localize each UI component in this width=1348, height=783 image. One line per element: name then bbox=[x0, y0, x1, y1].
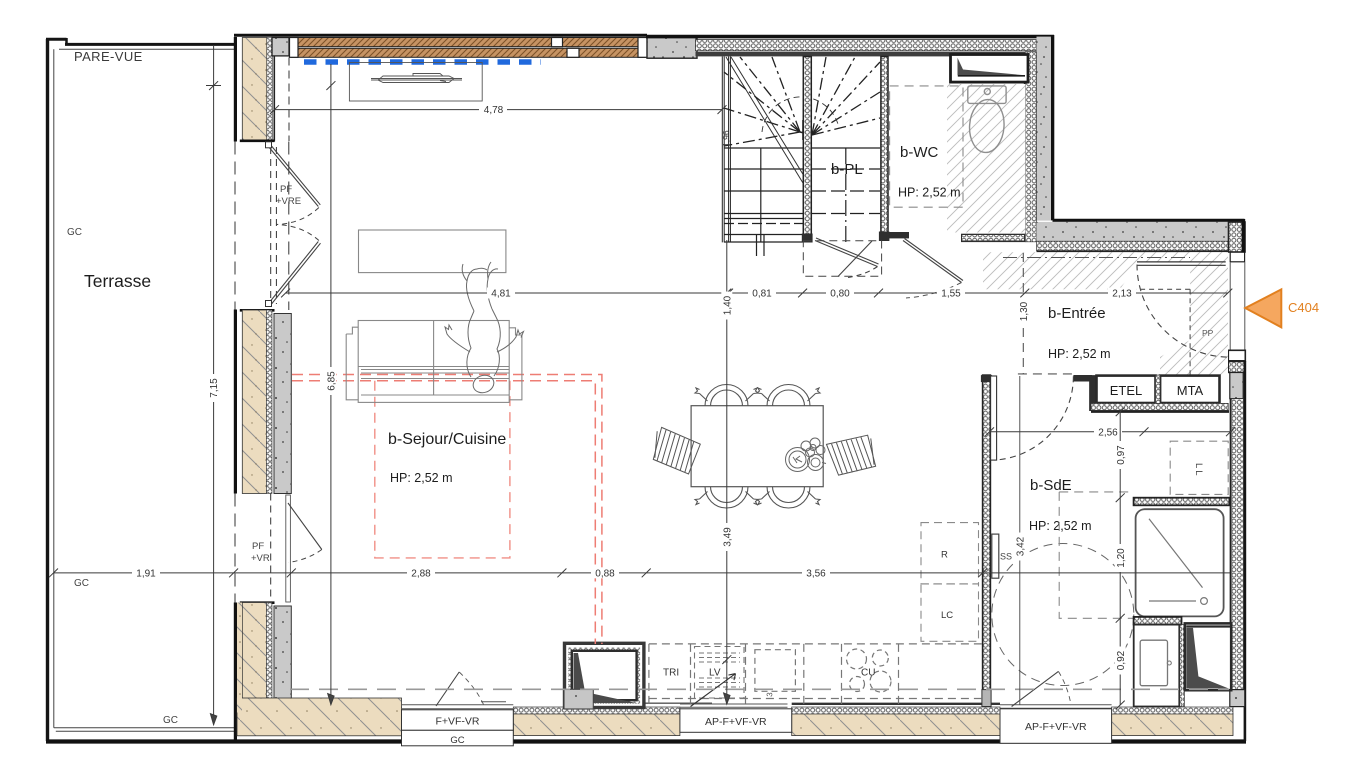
svg-text:GC: GC bbox=[67, 227, 82, 238]
svg-text:ETEL: ETEL bbox=[1110, 383, 1143, 398]
svg-text:b-PL: b-PL bbox=[831, 161, 863, 178]
svg-text:+VRE: +VRE bbox=[276, 196, 301, 207]
svg-text:AP-F+VF-VR: AP-F+VF-VR bbox=[1025, 721, 1087, 733]
svg-text:PP: PP bbox=[1202, 328, 1214, 338]
svg-text:Terrasse: Terrasse bbox=[84, 271, 151, 291]
svg-text:TRI: TRI bbox=[663, 668, 679, 679]
svg-text:HP: 2,52 m: HP: 2,52 m bbox=[1029, 519, 1092, 533]
svg-text:LV: LV bbox=[709, 668, 721, 679]
svg-text:6,85: 6,85 bbox=[327, 371, 338, 391]
svg-text:3,42: 3,42 bbox=[1015, 536, 1026, 556]
svg-text:2,13: 2,13 bbox=[1112, 289, 1132, 300]
svg-text:0,88: 0,88 bbox=[595, 569, 615, 580]
svg-text:0,97: 0,97 bbox=[1116, 445, 1127, 465]
svg-text:b-WC: b-WC bbox=[900, 144, 938, 161]
svg-text:0,92: 0,92 bbox=[1116, 650, 1127, 670]
svg-text:2,56: 2,56 bbox=[1098, 428, 1118, 439]
svg-text:7,15: 7,15 bbox=[209, 378, 220, 398]
svg-text:LC: LC bbox=[941, 610, 953, 621]
svg-text:1,55: 1,55 bbox=[941, 289, 961, 300]
svg-text:AP-F+VF-VR: AP-F+VF-VR bbox=[705, 716, 767, 728]
svg-text:HP: 2,52 m: HP: 2,52 m bbox=[390, 471, 453, 485]
svg-text:GC: GC bbox=[74, 578, 89, 589]
svg-text:GC: GC bbox=[163, 715, 178, 726]
svg-text:b-Sejour/Cuisine: b-Sejour/Cuisine bbox=[388, 431, 506, 448]
svg-text:F+VF-VR: F+VF-VR bbox=[435, 716, 479, 728]
svg-text:4,78: 4,78 bbox=[484, 105, 504, 116]
svg-text:3,49: 3,49 bbox=[722, 527, 733, 547]
svg-text:0,81: 0,81 bbox=[752, 289, 772, 300]
svg-text:1,91: 1,91 bbox=[136, 569, 156, 580]
svg-text:0,80: 0,80 bbox=[830, 289, 850, 300]
svg-text:HP: 2,52 m: HP: 2,52 m bbox=[898, 186, 961, 200]
svg-text:2,88: 2,88 bbox=[411, 569, 431, 580]
svg-text:MTA: MTA bbox=[1177, 383, 1204, 398]
svg-text:b-Entrée: b-Entrée bbox=[1048, 305, 1106, 322]
svg-text:PARE-VUE: PARE-VUE bbox=[74, 49, 143, 64]
svg-text:PF: PF bbox=[280, 184, 292, 195]
svg-text:1,96: 1,96 bbox=[721, 130, 731, 147]
svg-text:C404: C404 bbox=[1288, 300, 1319, 315]
svg-text:PF: PF bbox=[252, 541, 264, 552]
svg-text:HP: 2,52 m: HP: 2,52 m bbox=[1048, 347, 1111, 361]
svg-text:4,81: 4,81 bbox=[491, 289, 511, 300]
svg-text:3,56: 3,56 bbox=[806, 569, 826, 580]
svg-text:1,20: 1,20 bbox=[1116, 548, 1127, 568]
svg-text:CU: CU bbox=[861, 668, 875, 679]
svg-text:1,40: 1,40 bbox=[722, 295, 733, 315]
svg-text:SS: SS bbox=[1000, 552, 1012, 562]
svg-text:1,30: 1,30 bbox=[1019, 301, 1030, 321]
svg-text:GC: GC bbox=[450, 735, 464, 746]
svg-text:LL: LL bbox=[1193, 463, 1204, 478]
svg-text:+VR: +VR bbox=[251, 553, 270, 564]
svg-text:R: R bbox=[941, 550, 948, 561]
